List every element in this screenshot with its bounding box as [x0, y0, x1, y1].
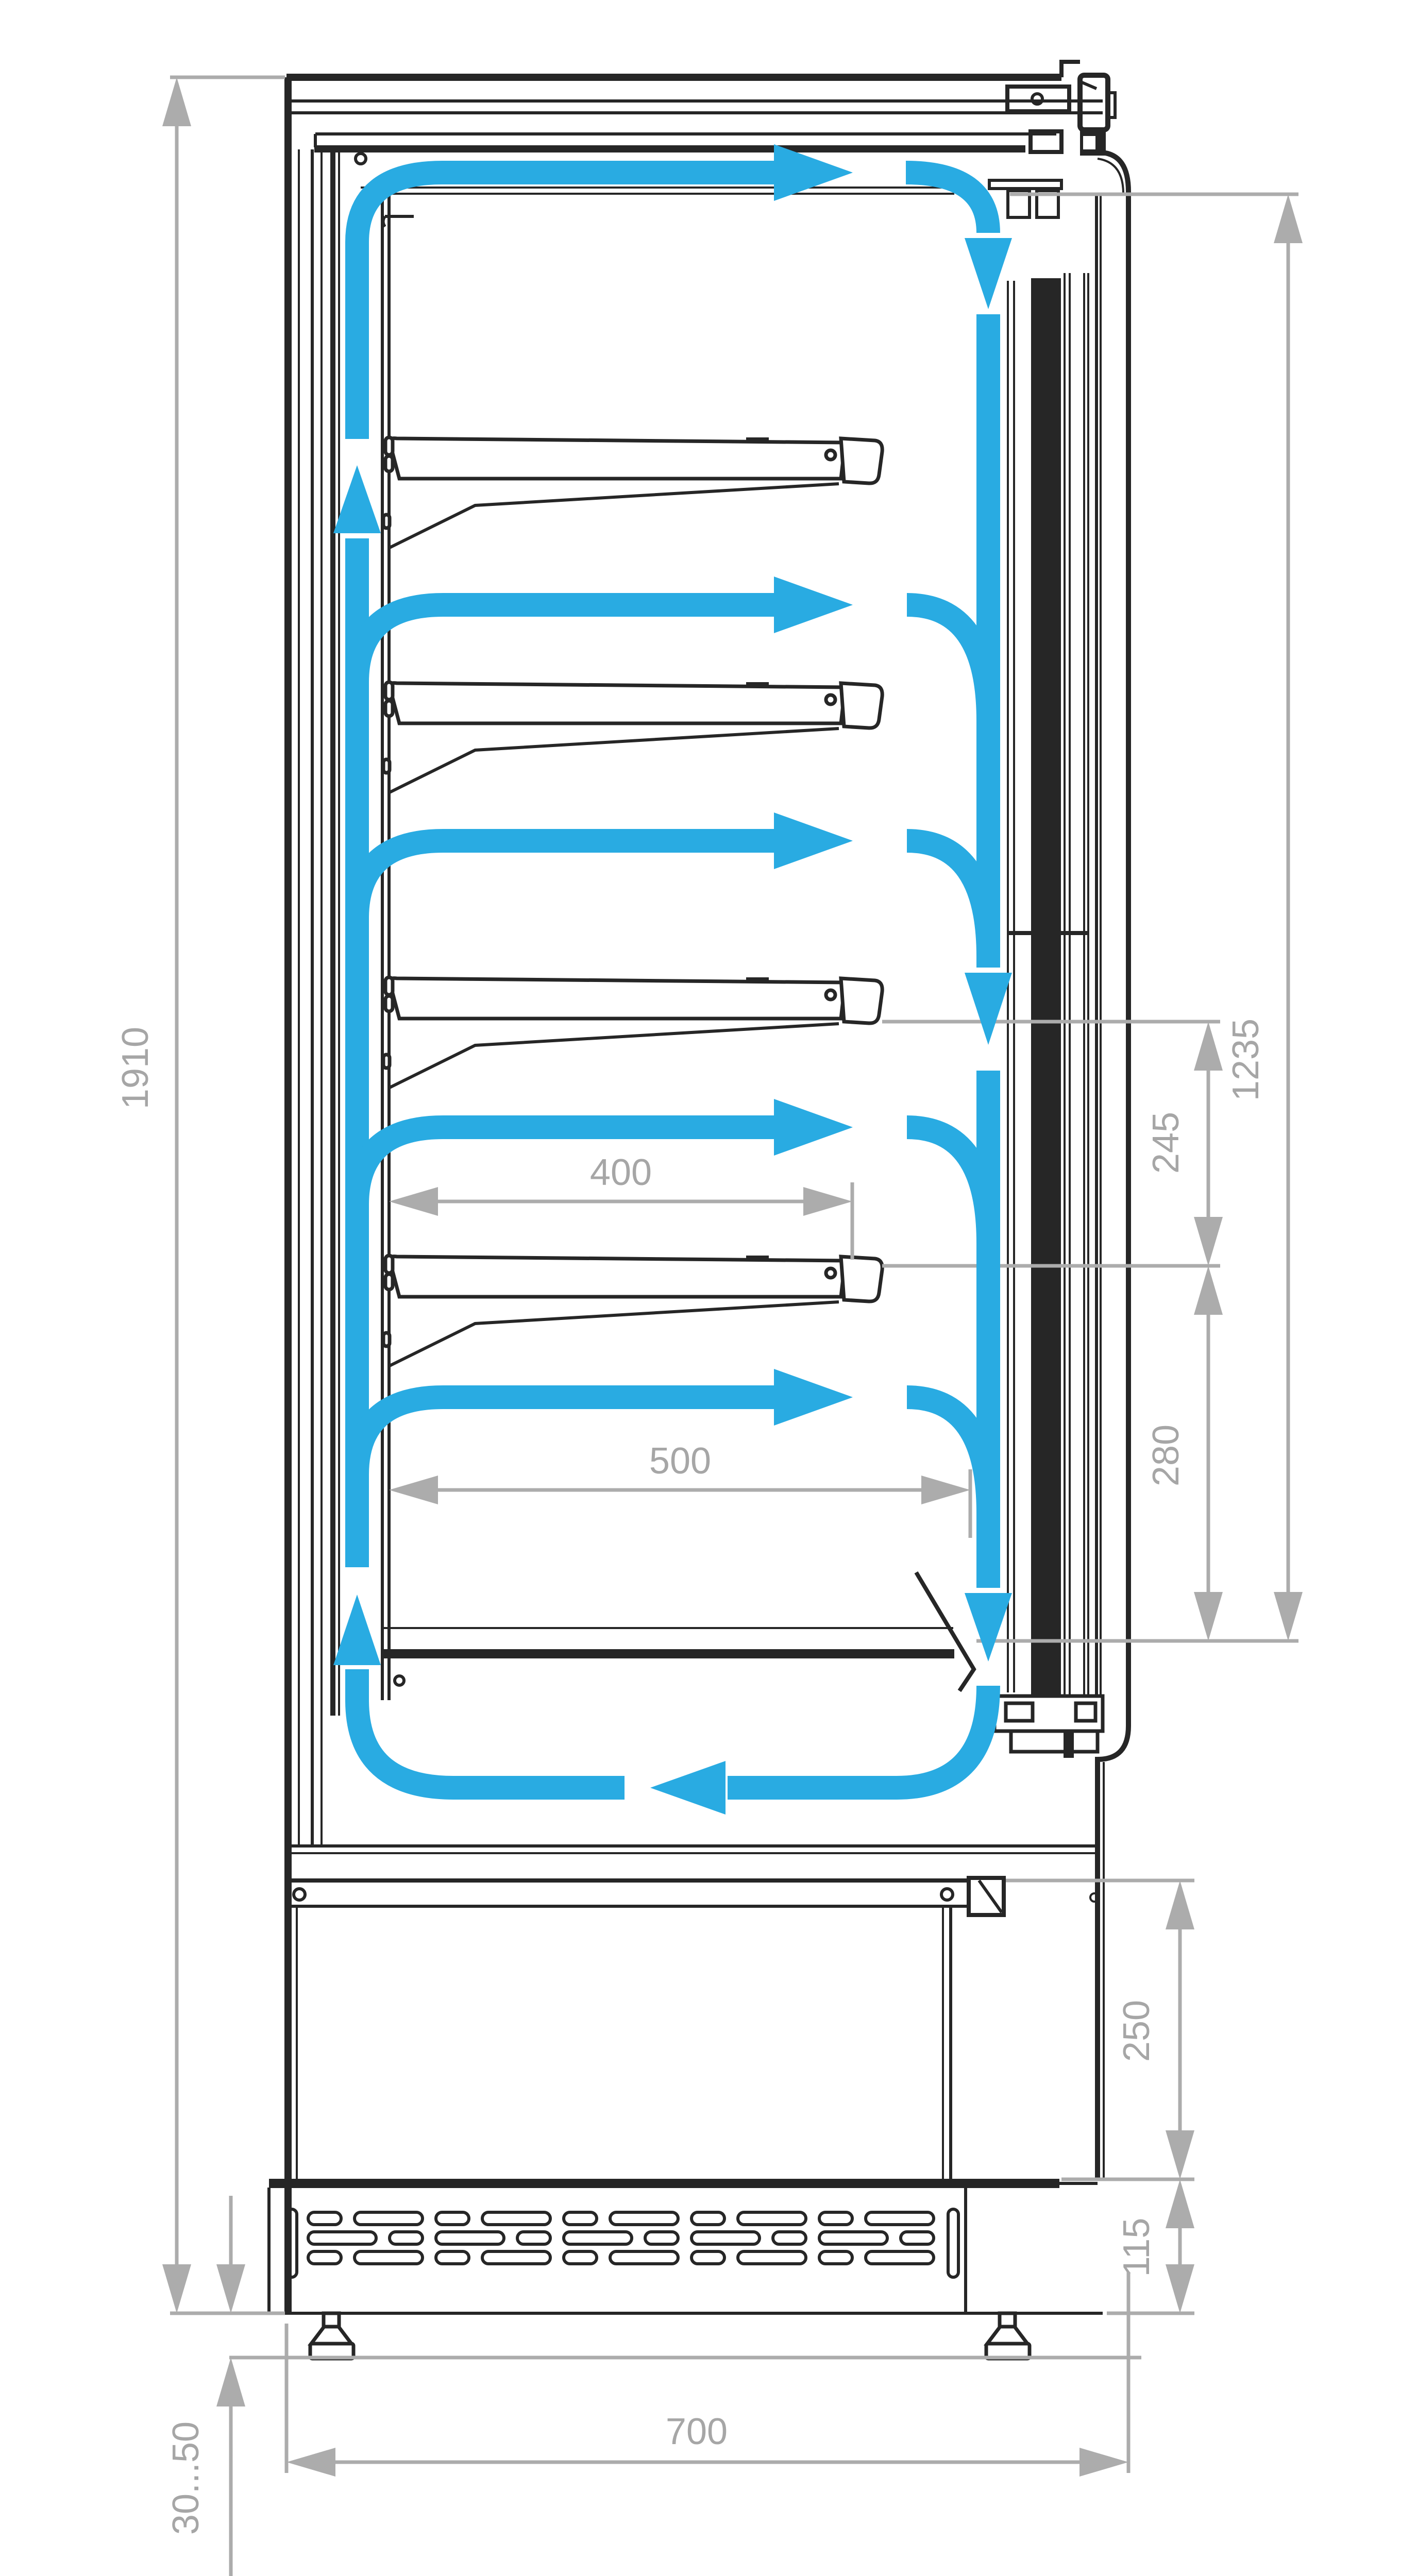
measure-arrow-icon	[389, 1187, 438, 1216]
right-arrow-icon	[774, 144, 853, 201]
left-arrow-icon	[650, 1761, 726, 1815]
shelf	[383, 682, 882, 792]
measure-arrow-icon	[286, 2448, 335, 2477]
screw-icon	[294, 1889, 305, 1900]
airflow-shelf-path	[357, 605, 774, 682]
right-arrow-icon	[774, 812, 853, 869]
right-arrow-icon	[774, 1369, 853, 1426]
up-arrow-icon	[333, 1595, 381, 1665]
cabinet-section-diagram: 1910 1235 245 280	[0, 0, 1417, 2576]
measure-arrow-icon	[803, 1187, 852, 1216]
measure-arrow-icon	[1166, 2130, 1194, 2179]
dimension-grille-height: 115	[1107, 2179, 1194, 2313]
screw-icon	[826, 990, 835, 999]
screw-icon	[1032, 94, 1042, 104]
dimension-label-30-50: 30...50	[165, 2421, 207, 2535]
right-arrow-icon	[774, 1099, 853, 1156]
dimension-label-245: 245	[1145, 1112, 1187, 1174]
vent-slot-row	[308, 2212, 934, 2225]
dimension-bottom-shelf-depth: 500	[389, 1440, 970, 1538]
interior-front-liner	[1008, 281, 1014, 1692]
measure-arrow-icon	[1166, 2264, 1194, 2313]
measure-arrow-icon	[1194, 1592, 1223, 1641]
dimension-interior-height: 1235	[976, 194, 1303, 1641]
screw-icon	[826, 695, 835, 704]
right-arrow-icon	[774, 577, 853, 633]
up-arrow-icon	[333, 465, 381, 533]
shelf	[383, 437, 882, 548]
measure-arrow-icon	[921, 1476, 970, 1504]
measure-arrow-icon	[216, 2264, 245, 2313]
base-unit	[269, 1878, 1099, 2183]
adjustable-foot	[986, 2313, 1030, 2359]
screw-icon	[826, 450, 835, 460]
screw-icon	[941, 1889, 953, 1900]
dimension-label-1235: 1235	[1225, 1019, 1267, 1101]
measure-arrow-icon	[1166, 2179, 1194, 2228]
dimension-label-115: 115	[1116, 2218, 1157, 2277]
screw-icon	[395, 1676, 404, 1685]
measure-arrow-icon	[389, 1476, 438, 1504]
measure-arrow-icon	[1274, 1592, 1303, 1641]
airflow-shelf-path	[357, 1397, 774, 1475]
measure-arrow-icon	[1194, 1022, 1223, 1071]
dimension-shelf-depth: 400	[389, 1152, 852, 1260]
screw-icon	[356, 154, 366, 164]
measure-arrow-icon	[162, 77, 191, 126]
diagram-page: 1910 1235 245 280	[0, 0, 1417, 2576]
dimension-label-280: 280	[1145, 1425, 1187, 1486]
airflow-top-path	[357, 173, 774, 439]
airflow-corner	[907, 841, 988, 957]
down-arrow-icon	[965, 973, 1012, 1045]
door-bottom-frame	[994, 1696, 1103, 1758]
vent-slot-row	[308, 2251, 934, 2264]
airflow-corner	[907, 1127, 988, 1243]
dimension-label-500: 500	[649, 1440, 711, 1482]
adjustable-foot	[310, 2313, 353, 2359]
airflow-bottom-path	[357, 1669, 625, 1788]
airflow-bottom-corner	[728, 1686, 988, 1788]
measure-arrow-icon	[1274, 194, 1303, 243]
door-frame-core	[1031, 278, 1061, 1695]
measure-arrow-icon	[216, 2358, 245, 2406]
airflow-shelf-path	[357, 841, 774, 918]
airflow-corner	[907, 605, 988, 721]
vent-slot	[948, 2209, 958, 2277]
measure-arrow-icon	[1194, 1266, 1223, 1315]
down-arrow-icon	[965, 238, 1012, 309]
ventilation-grille	[269, 2188, 1103, 2313]
dimension-label-400: 400	[590, 1152, 652, 1193]
airflow-top-corner	[906, 173, 988, 233]
air-deflector	[916, 1572, 974, 1691]
vent-slot-row	[308, 2232, 934, 2244]
dimension-below-bottom-shelf: 280	[1145, 1266, 1223, 1641]
measure-arrow-icon	[1194, 1217, 1223, 1266]
dimension-label-1910: 1910	[115, 1027, 156, 1109]
measure-arrow-icon	[1079, 2448, 1128, 2477]
down-arrow-icon	[965, 1593, 1012, 1662]
dimension-overall-depth: 700	[286, 2272, 1128, 2477]
shelf	[383, 1256, 882, 1366]
dimension-overall-height: 1910	[115, 77, 285, 2313]
dimension-label-700: 700	[666, 2411, 728, 2452]
dimension-label-250: 250	[1116, 2000, 1157, 2062]
measure-arrow-icon	[1166, 1880, 1194, 1929]
measure-arrow-icon	[162, 2264, 191, 2313]
screw-icon	[826, 1268, 835, 1278]
shelf	[383, 977, 882, 1088]
